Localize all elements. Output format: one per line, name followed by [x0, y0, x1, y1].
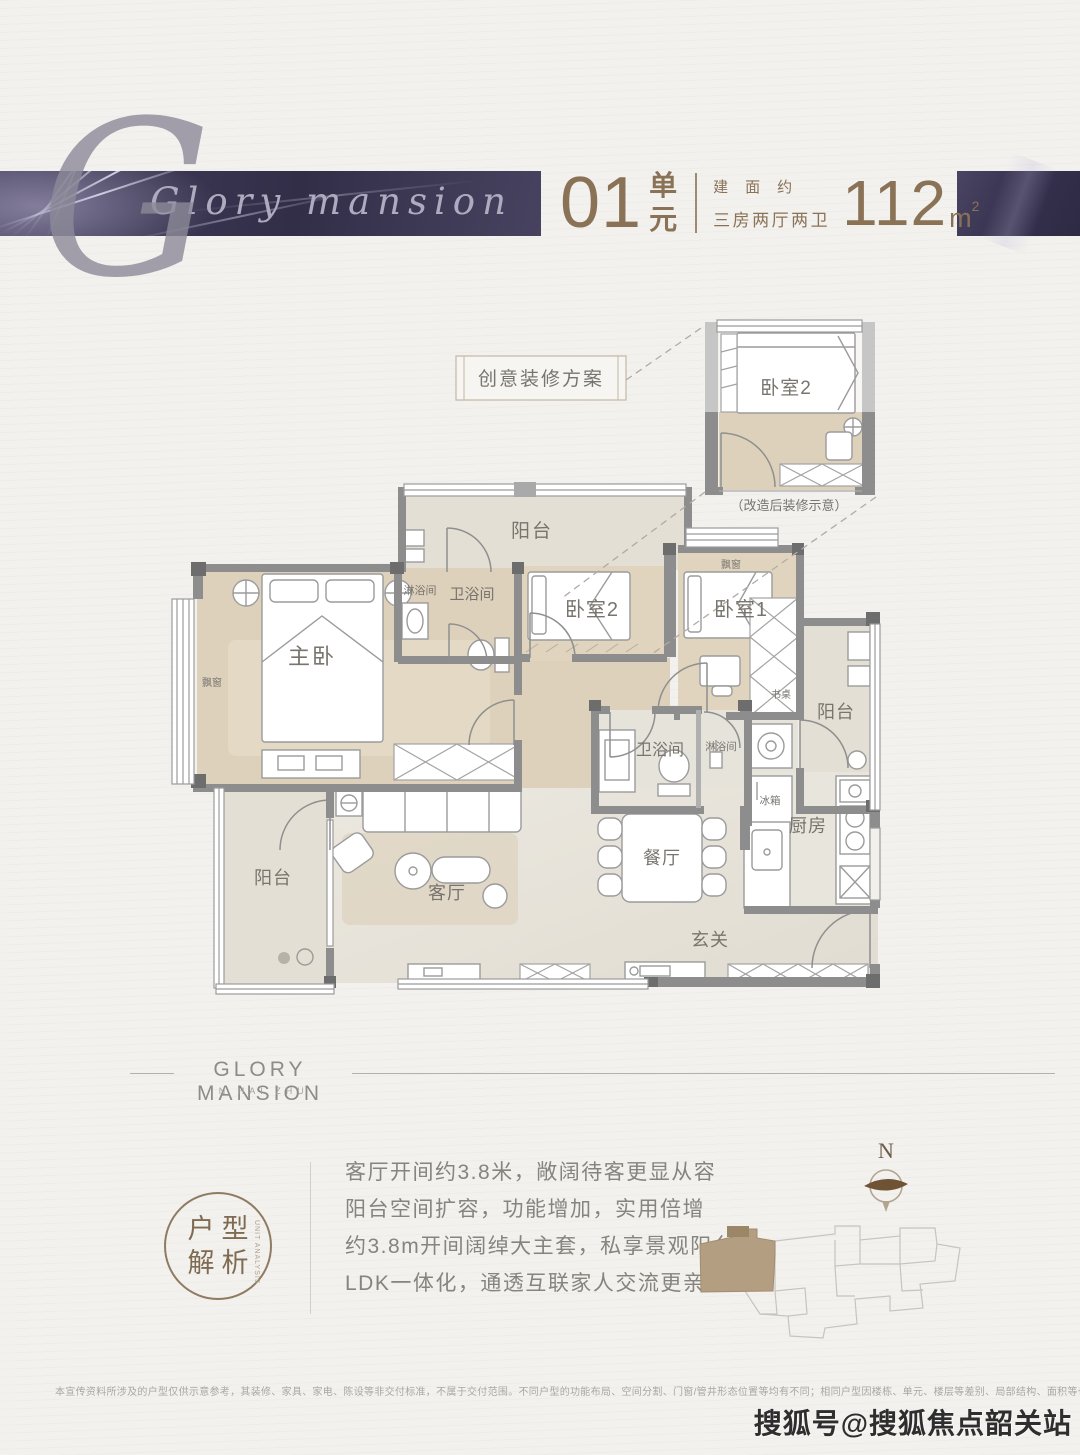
label-baywindow-b1: 飘窗 — [721, 558, 741, 571]
label-master: 主卧 — [288, 644, 336, 669]
label-fridge: 冰箱 — [760, 794, 781, 807]
label-shower-lower: 淋浴间 — [705, 740, 737, 753]
label-bath-lower: 卫浴间 — [636, 741, 684, 759]
label-bedroom2: 卧室2 — [565, 598, 619, 621]
inset-room-label: 卧室2 — [760, 377, 812, 399]
label-shower-top: 淋浴间 — [404, 584, 437, 597]
plan-title-box: 创意装修方案 — [456, 356, 626, 400]
label-desk: 书桌 — [771, 688, 791, 701]
label-bedroom1: 卧室1 — [714, 598, 768, 621]
label-balcony-top: 阳台 — [511, 520, 553, 542]
label-foyer: 玄关 — [691, 930, 729, 950]
label-balcony-right: 阳台 — [817, 702, 855, 722]
label-dining: 餐厅 — [643, 848, 681, 868]
label-living: 客厅 — [428, 883, 466, 903]
label-kitchen: 厨房 — [789, 816, 827, 836]
label-balcony-bottom: 阳台 — [254, 868, 292, 888]
inset-caption: （改造后装修示意） — [730, 498, 847, 513]
poster-page: G Glory mansion 01 单 元 建面约 三房两厅两卫 112 m … — [0, 0, 1080, 1455]
script-initial: G — [40, 92, 212, 307]
label-bath-top: 卫浴间 — [449, 586, 494, 603]
plan-title: 创意装修方案 — [478, 368, 604, 390]
label-baywindow-master: 飘窗 — [202, 676, 222, 689]
